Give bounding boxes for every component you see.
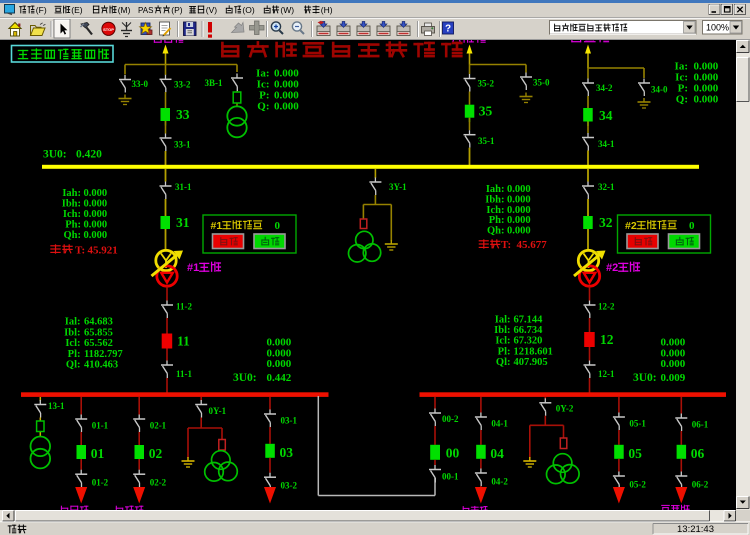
svg-text:T:: T: [501, 239, 511, 251]
svg-text:04-1: 04-1 [491, 419, 508, 429]
svg-text:0.000: 0.000 [267, 358, 292, 370]
svg-text:(W): (W) [280, 5, 294, 15]
svg-text:06-1: 06-1 [692, 420, 709, 430]
svg-text:66.734: 66.734 [514, 325, 544, 336]
svg-text:05-2: 05-2 [629, 480, 646, 490]
svg-text:0: 0 [689, 220, 695, 232]
svg-text:Qh:: Qh: [487, 226, 505, 237]
svg-text:0.009: 0.009 [661, 372, 686, 384]
svg-text:Icl:: Icl: [65, 338, 80, 349]
svg-text:#2: #2 [625, 220, 637, 232]
svg-text:Ibh:: Ibh: [62, 199, 81, 210]
svg-text:34-0: 34-0 [651, 85, 668, 95]
svg-text:13:21:43: 13:21:43 [677, 524, 714, 535]
svg-text:407.905: 407.905 [514, 357, 548, 368]
svg-text:11-1: 11-1 [176, 369, 193, 379]
svg-text:35: 35 [479, 104, 493, 119]
svg-text:32-1: 32-1 [598, 182, 615, 192]
svg-text:03-2: 03-2 [281, 481, 298, 491]
svg-text:0.000: 0.000 [661, 358, 686, 370]
svg-text:Iah:: Iah: [62, 188, 81, 199]
svg-text:0.000: 0.000 [84, 188, 108, 199]
svg-text:Ph:: Ph: [489, 215, 505, 226]
svg-text:Qh:: Qh: [63, 230, 81, 241]
svg-text:04-2: 04-2 [491, 477, 508, 487]
svg-text:34-2: 34-2 [596, 83, 613, 93]
svg-text:T:: T: [75, 245, 85, 257]
svg-text:65.855: 65.855 [84, 327, 113, 338]
svg-text:#2: #2 [606, 262, 618, 274]
svg-text:01-2: 01-2 [92, 478, 109, 488]
svg-text:0.442: 0.442 [267, 372, 292, 384]
svg-text:3B-1: 3B-1 [205, 78, 224, 88]
svg-text:65.562: 65.562 [84, 338, 113, 349]
svg-text:33-0: 33-0 [132, 79, 149, 89]
svg-text:(O): (O) [242, 5, 254, 15]
svg-text:03-1: 03-1 [281, 416, 298, 426]
svg-text:0.000: 0.000 [507, 184, 531, 195]
svg-text:64.683: 64.683 [84, 317, 113, 328]
svg-text:02: 02 [149, 446, 163, 461]
svg-text:45.677: 45.677 [517, 239, 548, 251]
svg-text:Ibl:: Ibl: [64, 327, 80, 338]
svg-text:Icl:: Icl: [495, 336, 510, 347]
svg-text:04: 04 [490, 446, 504, 461]
svg-text:#1: #1 [211, 220, 223, 232]
svg-text:0.000: 0.000 [274, 101, 299, 113]
svg-text:410.463: 410.463 [84, 360, 118, 371]
svg-text:0Y-1: 0Y-1 [209, 406, 227, 416]
svg-text:(F): (F) [36, 5, 47, 15]
svg-text:Ial:: Ial: [495, 315, 511, 326]
svg-text:Ibh:: Ibh: [485, 194, 504, 205]
svg-text:33-2: 33-2 [174, 80, 191, 90]
svg-text:0.000: 0.000 [694, 94, 719, 106]
svg-text:Iah:: Iah: [486, 184, 505, 195]
svg-text:12: 12 [600, 332, 614, 347]
svg-text:05: 05 [628, 446, 642, 461]
svg-text:31-1: 31-1 [175, 182, 192, 192]
svg-text:12-1: 12-1 [598, 369, 615, 379]
svg-text:67.320: 67.320 [514, 336, 543, 347]
svg-text:35-1: 35-1 [478, 136, 495, 146]
svg-text:31: 31 [176, 215, 190, 230]
svg-text:3U0:: 3U0: [633, 372, 657, 384]
svg-text:(P): (P) [171, 5, 183, 15]
svg-text:Ial:: Ial: [65, 317, 81, 328]
svg-text:02-2: 02-2 [150, 478, 167, 488]
svg-text:01: 01 [91, 446, 105, 461]
svg-text:Ich:: Ich: [486, 205, 504, 216]
svg-text:0.000: 0.000 [84, 209, 108, 220]
svg-text:34: 34 [599, 108, 613, 123]
svg-text:Ql:: Ql: [496, 357, 511, 368]
svg-text:12-2: 12-2 [598, 302, 615, 312]
svg-text:Q:: Q: [676, 94, 688, 106]
svg-text:(E): (E) [71, 5, 83, 15]
svg-text:33: 33 [176, 107, 190, 122]
svg-text:00-2: 00-2 [442, 414, 459, 424]
svg-text:0.000: 0.000 [507, 205, 531, 216]
svg-text:00-1: 00-1 [442, 472, 459, 482]
svg-text:PAS: PAS [138, 6, 153, 15]
svg-text:0: 0 [275, 220, 281, 232]
svg-text:STOP: STOP [103, 27, 114, 32]
svg-text:0Y-2: 0Y-2 [556, 404, 574, 414]
svg-text:05-1: 05-1 [629, 419, 646, 429]
svg-text:Q:: Q: [257, 101, 269, 113]
svg-text:1218.601: 1218.601 [514, 346, 553, 357]
svg-text:34-1: 34-1 [598, 139, 615, 149]
svg-text:(V): (V) [206, 5, 218, 15]
svg-text:(M): (M) [118, 5, 131, 15]
svg-text:Ich:: Ich: [63, 209, 81, 220]
svg-text:0.000: 0.000 [507, 226, 531, 237]
svg-text:32: 32 [599, 215, 613, 230]
svg-text:13-1: 13-1 [48, 401, 65, 411]
svg-text:Ph:: Ph: [65, 220, 81, 231]
svg-text:3U0:: 3U0: [43, 149, 67, 161]
svg-text:67.144: 67.144 [514, 315, 544, 326]
svg-text:0.000: 0.000 [84, 220, 108, 231]
svg-text:#1: #1 [187, 262, 199, 274]
svg-text:Pl:: Pl: [68, 349, 81, 360]
svg-text:06: 06 [691, 446, 705, 461]
svg-text:0.000: 0.000 [84, 230, 108, 241]
svg-text:(H): (H) [321, 5, 333, 15]
svg-text:?: ? [445, 24, 451, 35]
svg-text:01-1: 01-1 [92, 421, 109, 431]
svg-text:0.000: 0.000 [507, 194, 531, 205]
svg-text:3U0:: 3U0: [233, 372, 257, 384]
svg-text:0.420: 0.420 [76, 149, 102, 161]
svg-text:0.000: 0.000 [84, 199, 108, 210]
svg-text:Pl:: Pl: [498, 346, 511, 357]
svg-text:00: 00 [446, 446, 460, 461]
svg-text:1182.797: 1182.797 [84, 349, 123, 360]
svg-text:11-2: 11-2 [176, 302, 193, 312]
svg-text:03: 03 [280, 445, 294, 460]
svg-text:Ibl:: Ibl: [494, 325, 510, 336]
svg-text:02-1: 02-1 [150, 421, 167, 431]
svg-text:100%: 100% [706, 23, 729, 33]
svg-text:0.000: 0.000 [507, 215, 531, 226]
svg-text:3Y-1: 3Y-1 [389, 182, 407, 192]
svg-text:11: 11 [177, 334, 190, 349]
svg-text:Ql:: Ql: [66, 360, 81, 371]
svg-text:35-0: 35-0 [533, 78, 550, 88]
svg-text:45.921: 45.921 [88, 245, 118, 257]
svg-text:06-2: 06-2 [692, 480, 709, 490]
svg-text:35-2: 35-2 [478, 79, 495, 89]
svg-text:33-1: 33-1 [174, 140, 191, 150]
